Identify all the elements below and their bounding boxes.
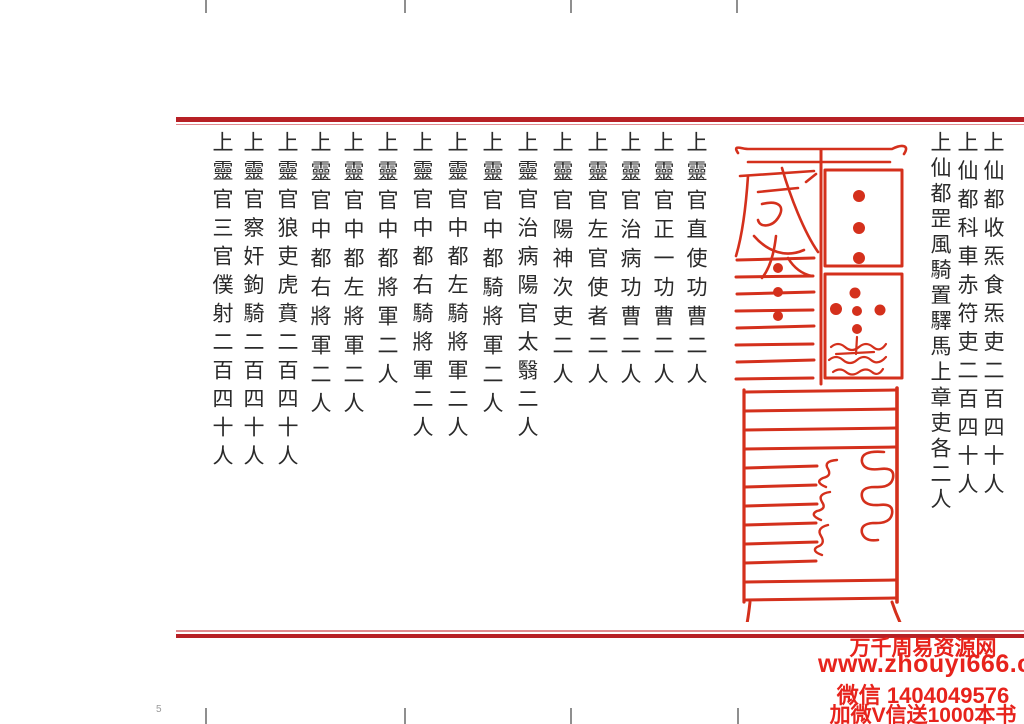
text-column-left-10: 上靈官中都左將軍二人 [339,131,367,421]
text-column-left-13: 上靈官察奸鉤騎二百四十人 [239,131,267,473]
top-tick-mark [570,0,572,13]
text-column-left-4: 上靈官陽神次吏二人 [548,131,576,392]
text-column-left-6: 上靈官中都騎將軍二人 [478,131,506,421]
text-column-right-1: 上仙都科車赤符吏二百四十人 [953,131,981,502]
text-column-left-9: 上靈官中都將軍二人 [373,131,401,392]
top-tick-mark [205,0,207,13]
text-column-left-8: 上靈官中都右騎將軍二人 [408,131,436,445]
scanned-scripture-page: 上仙都收炁食炁吏二百四十人上仙都科車赤符吏二百四十人上仙都罡風騎置驛馬上章吏各二… [0,0,1024,724]
text-column-left-12: 上靈官狼吏虎賁二百四十人 [273,131,301,473]
page-number: 5 [156,704,162,715]
top-border-thin-line [176,124,1024,126]
top-tick-mark [404,0,406,13]
text-column-left-2: 上靈官治病功曹二人 [616,131,644,392]
top-tick-mark [736,0,738,13]
text-column-right-2: 上仙都罡風騎置驛馬上章吏各二人 [926,131,954,514]
text-column-right-0: 上仙都收炁食炁吏二百四十人 [979,131,1007,502]
watermark-promo: 加微V信送1000本书 [818,699,1024,724]
text-column-left-1: 上靈官正一功曹二人 [649,131,677,392]
text-column-left-3: 上靈官左官使者二人 [583,131,611,392]
top-border-thick-line [176,117,1024,122]
text-column-left-7: 上靈官中都左騎將軍二人 [443,131,471,445]
text-column-left-14: 上靈官三官僕射二百四十人 [208,131,236,473]
bottom-tick-mark [570,708,572,724]
bottom-tick-mark [205,708,207,724]
bottom-tick-mark [404,708,406,724]
talisman-seal-icon [724,140,918,622]
text-column-left-0: 上靈官直使功曹二人 [682,131,710,392]
text-column-left-11: 上靈官中都右將軍二人 [306,131,334,421]
bottom-tick-mark [737,708,739,724]
text-column-left-5: 上靈官治病陽官太翳二人 [513,131,541,445]
watermark-url: www.zhouyi666.com [818,650,1024,679]
